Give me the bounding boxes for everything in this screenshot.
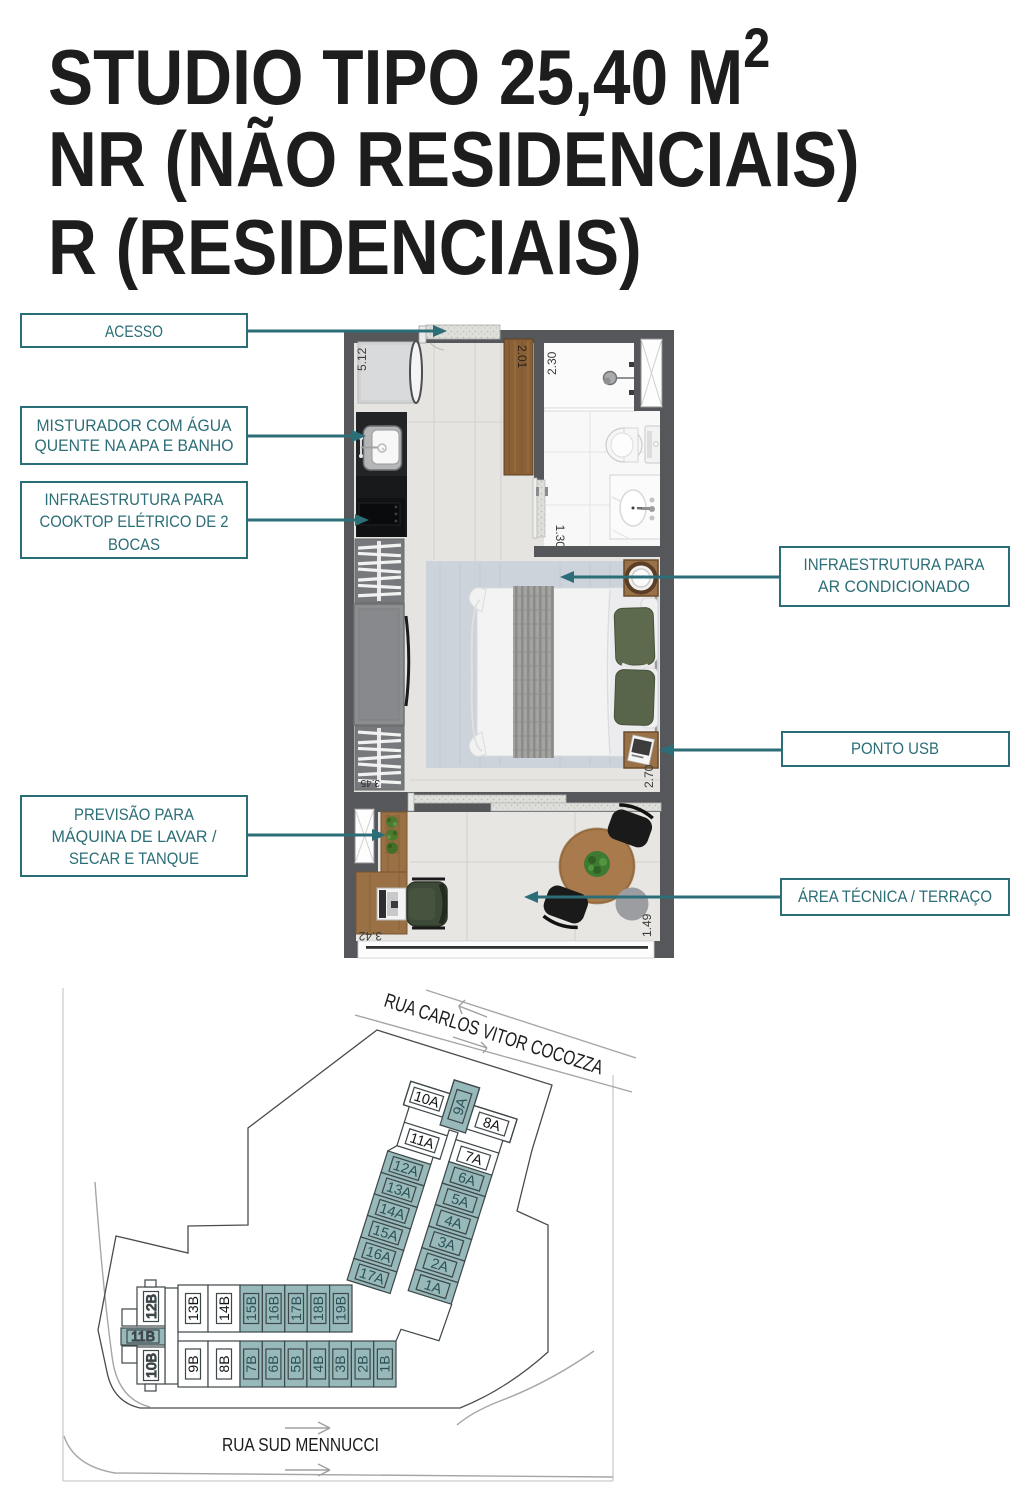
svg-text:15B: 15B — [243, 1296, 259, 1321]
svg-text:6B: 6B — [265, 1355, 281, 1372]
svg-text:4B: 4B — [310, 1355, 326, 1372]
svg-text:19B: 19B — [333, 1296, 349, 1321]
svg-text:5.12: 5.12 — [355, 347, 369, 371]
svg-text:1.30: 1.30 — [553, 525, 567, 549]
svg-text:ACESSO: ACESSO — [105, 323, 163, 341]
svg-text:9B: 9B — [185, 1355, 201, 1372]
svg-text:1B: 1B — [377, 1355, 393, 1372]
svg-text:RUA SUD MENNUCCI: RUA SUD MENNUCCI — [222, 1435, 379, 1455]
svg-text:14B: 14B — [216, 1296, 232, 1321]
svg-text:AR CONDICIONADO: AR CONDICIONADO — [818, 578, 970, 596]
svg-text:5B: 5B — [288, 1355, 304, 1372]
svg-text:BOCAS: BOCAS — [108, 536, 160, 554]
svg-text:1.49: 1.49 — [640, 913, 654, 937]
svg-text:17B: 17B — [288, 1296, 304, 1321]
svg-text:QUENTE NA APA E BANHO: QUENTE NA APA E BANHO — [35, 437, 234, 455]
svg-text:SECAR E TANQUE: SECAR E TANQUE — [69, 850, 199, 868]
svg-text:16B: 16B — [265, 1296, 281, 1321]
svg-text:PONTO USB: PONTO USB — [851, 740, 939, 758]
svg-text:11B: 11B — [131, 1328, 155, 1344]
svg-text:2.70: 2.70 — [642, 764, 656, 788]
svg-text:3.45: 3.45 — [360, 777, 380, 788]
svg-text:INFRAESTRUTURA PARA: INFRAESTRUTURA PARA — [804, 556, 985, 574]
svg-text:MÁQUINA DE LAVAR /: MÁQUINA DE LAVAR / — [52, 827, 217, 846]
svg-text:2.01: 2.01 — [515, 345, 529, 369]
svg-text:3B: 3B — [332, 1355, 348, 1372]
svg-text:ÁREA TÉCNICA / TERRAÇO: ÁREA TÉCNICA / TERRAÇO — [798, 887, 992, 906]
svg-text:MISTURADOR COM ÁGUA: MISTURADOR COM ÁGUA — [37, 416, 232, 435]
svg-text:18B: 18B — [310, 1296, 326, 1321]
svg-text:7B: 7B — [243, 1355, 259, 1372]
svg-text:COOKTOP ELÉTRICO DE 2: COOKTOP ELÉTRICO DE 2 — [40, 512, 229, 531]
svg-text:13B: 13B — [185, 1296, 201, 1321]
svg-text:2B: 2B — [354, 1355, 370, 1372]
svg-text:2.30: 2.30 — [545, 351, 559, 375]
svg-text:INFRAESTRUTURA PARA: INFRAESTRUTURA PARA — [45, 491, 224, 509]
svg-text:PREVISÃO PARA: PREVISÃO PARA — [74, 804, 194, 824]
svg-text:10B: 10B — [143, 1353, 159, 1378]
svg-text:12B: 12B — [143, 1294, 159, 1319]
svg-text:8B: 8B — [216, 1355, 232, 1372]
